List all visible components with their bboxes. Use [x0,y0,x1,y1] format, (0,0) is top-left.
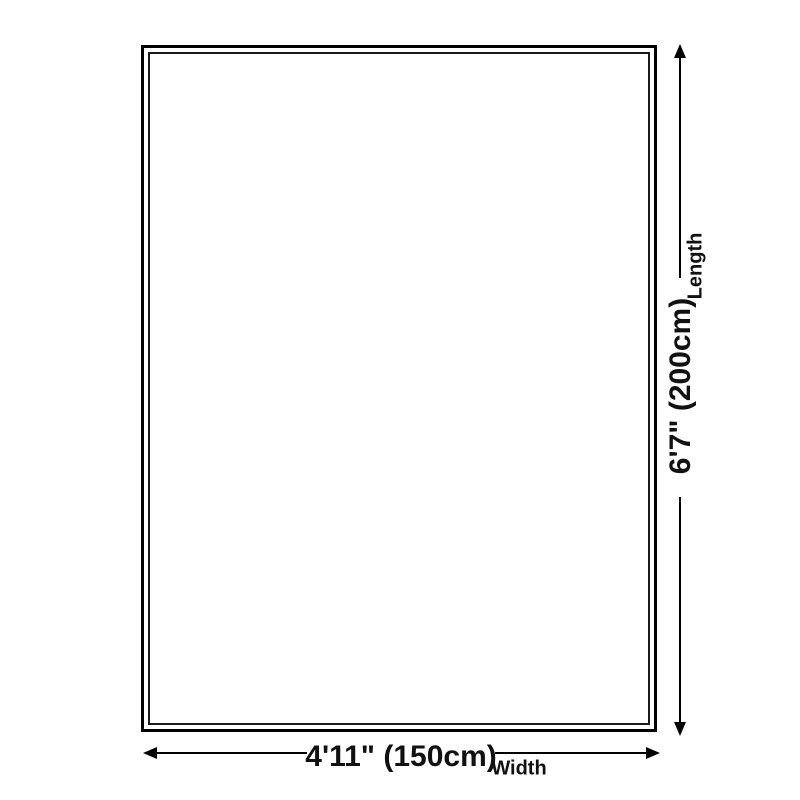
dimension-diagram: Length 6'7" (200cm) 4'11" (150cm) Width [0,0,800,800]
width-arrow-right-icon [646,747,660,759]
width-dimension-label: Width [491,758,546,781]
length-arrow-down-icon [674,722,686,736]
width-dimension-line-right [495,752,648,754]
product-outline [141,45,657,732]
product-inner-border [148,52,650,725]
length-dimension-value: 6'7" (200cm) [664,298,698,474]
length-dimension-line-lower [679,497,681,725]
length-dimension-line-upper [679,55,681,278]
width-dimension-line-left [155,752,307,754]
length-dimension-label: Length [685,233,708,300]
width-dimension-value: 4'11" (150cm) [305,740,496,774]
